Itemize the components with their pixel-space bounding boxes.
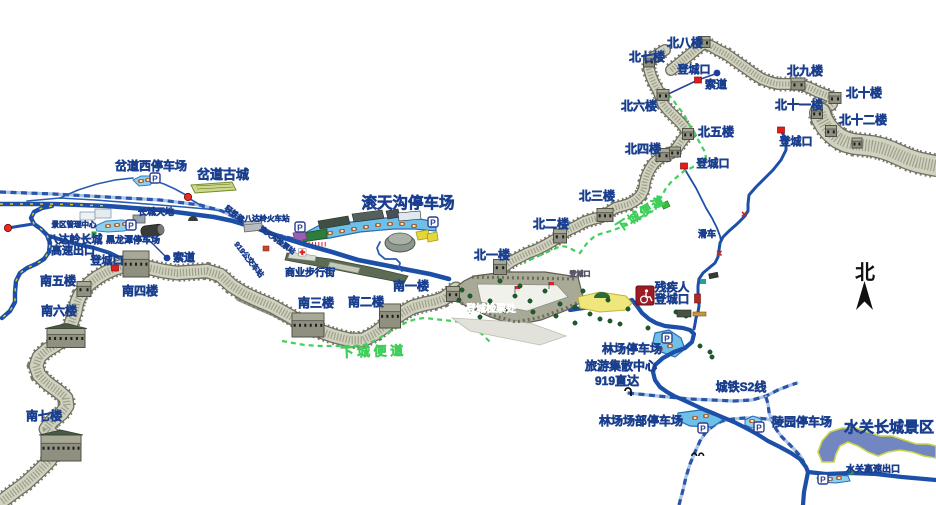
svg-text:黑龙潭停车场: 黑龙潭停车场: [106, 234, 160, 245]
svg-text:北五楼: 北五楼: [698, 124, 734, 139]
svg-text:P: P: [820, 474, 826, 484]
svg-text:P: P: [756, 422, 762, 432]
svg-text:八达岭长城: 八达岭长城: [47, 232, 103, 246]
svg-text:登城口: 登城口: [569, 269, 591, 278]
svg-text:北十一楼: 北十一楼: [775, 97, 823, 112]
svg-text:P: P: [128, 220, 134, 230]
svg-text:南一楼: 南一楼: [393, 278, 429, 293]
svg-text:南七楼: 南七楼: [26, 408, 62, 423]
svg-text:南三楼: 南三楼: [298, 295, 334, 310]
svg-text:北: 北: [855, 261, 875, 284]
svg-text:P: P: [700, 423, 706, 433]
svg-text:南二楼: 南二楼: [348, 294, 384, 309]
svg-text:登城口: 登城口: [654, 292, 690, 306]
svg-text:南六楼: 南六楼: [41, 303, 77, 318]
svg-text:残疾人: 残疾人: [655, 280, 690, 294]
svg-text:北一楼: 北一楼: [474, 247, 510, 262]
svg-text:北二楼: 北二楼: [533, 216, 569, 231]
svg-text:北十楼: 北十楼: [846, 85, 882, 100]
svg-text:P: P: [297, 222, 303, 232]
svg-text:南五楼: 南五楼: [40, 273, 76, 288]
svg-text:下 城 便 道: 下 城 便 道: [340, 343, 403, 360]
svg-text:索道: 索道: [705, 77, 727, 91]
svg-text:水关高速出口: 水关高速出口: [846, 463, 900, 474]
svg-text:八达岭火车站: 八达岭火车站: [244, 213, 290, 223]
svg-text:城铁S2线: 城铁S2线: [716, 379, 767, 394]
svg-text:北四楼: 北四楼: [625, 141, 661, 156]
svg-text:北九楼: 北九楼: [787, 63, 823, 78]
svg-text:旅游集散中心: 旅游集散中心: [585, 358, 657, 373]
svg-text:商业步行街: 商业步行街: [285, 266, 335, 279]
svg-text:滑车: 滑车: [698, 228, 716, 239]
svg-text:登城口: 登城口: [677, 62, 711, 76]
svg-text:北六楼: 北六楼: [621, 98, 657, 113]
svg-text:P: P: [152, 173, 158, 183]
svg-text:北七楼: 北七楼: [629, 49, 665, 64]
svg-text:景区管理中心: 景区管理中心: [52, 219, 97, 229]
svg-text:长城天地: 长城天地: [138, 206, 174, 217]
svg-text:北三楼: 北三楼: [579, 188, 615, 203]
svg-text:陵园停车场: 陵园停车场: [772, 414, 832, 429]
svg-text:滚天沟停车场: 滚天沟停车场: [361, 193, 454, 212]
svg-text:南四楼: 南四楼: [122, 283, 158, 298]
svg-text:岔道古城: 岔道古城: [197, 167, 249, 182]
svg-text:P: P: [430, 217, 436, 227]
svg-text:林场场部停车场: 林场场部停车场: [599, 413, 683, 428]
svg-text:岔道西停车场: 岔道西停车场: [114, 158, 187, 173]
svg-text:919直达: 919直达: [595, 373, 639, 388]
svg-text:北八楼: 北八楼: [667, 35, 703, 50]
svg-text:水关长城景区: 水关长城景区: [844, 418, 934, 436]
svg-text:索道: 索道: [173, 250, 195, 264]
svg-text:林场停车场: 林场停车场: [602, 341, 662, 356]
svg-text:登城口: 登城口: [696, 156, 730, 170]
svg-text:高速出口: 高速出口: [51, 243, 95, 257]
svg-text:登城口: 登城口: [779, 134, 813, 148]
svg-text:P: P: [664, 333, 670, 343]
svg-text:北十二楼: 北十二楼: [839, 112, 887, 127]
svg-text:登城检票处: 登城检票处: [465, 302, 517, 315]
